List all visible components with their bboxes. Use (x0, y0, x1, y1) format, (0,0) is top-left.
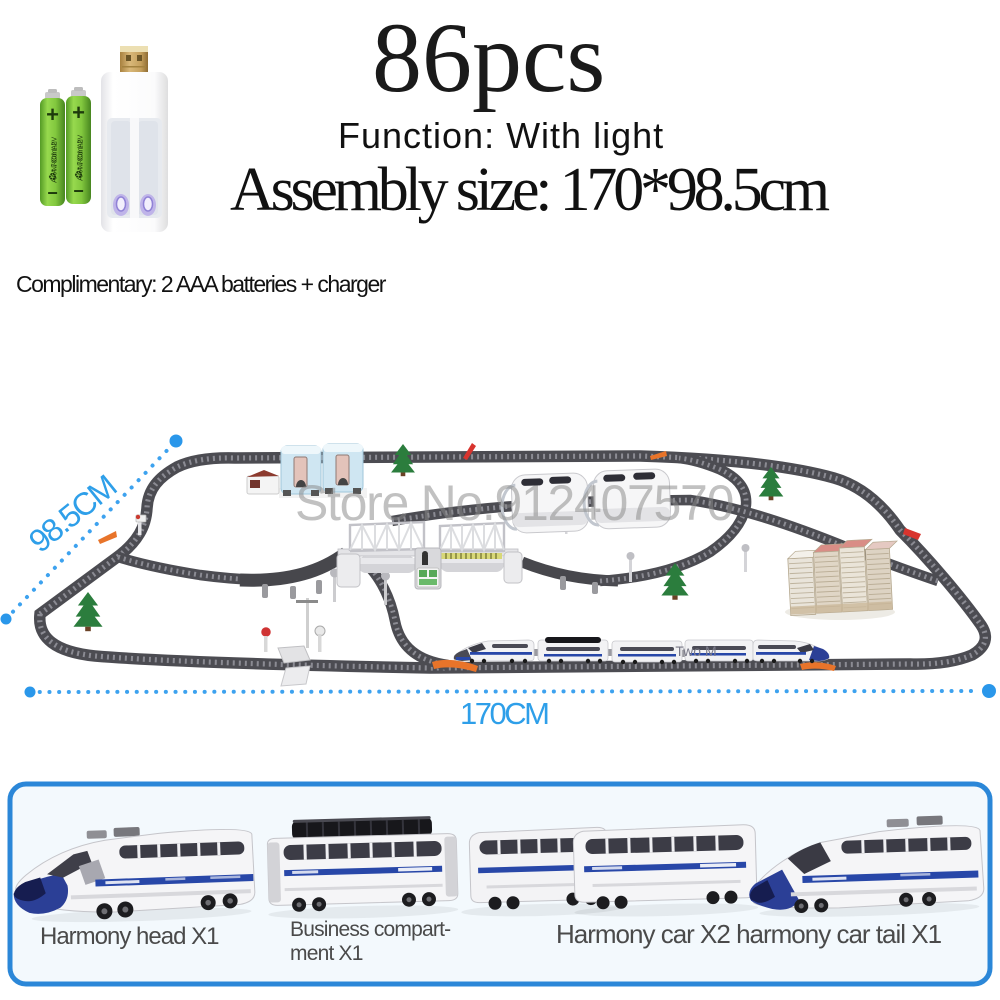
svg-text:−: − (73, 181, 84, 201)
svg-text:Two M: Two M (675, 643, 716, 659)
svg-text:♻: ♻ (48, 172, 57, 183)
svg-text:♻: ♻ (74, 170, 83, 181)
svg-text:+: + (72, 100, 85, 125)
svg-text:+: + (46, 102, 59, 127)
svg-text:−: − (47, 183, 58, 203)
